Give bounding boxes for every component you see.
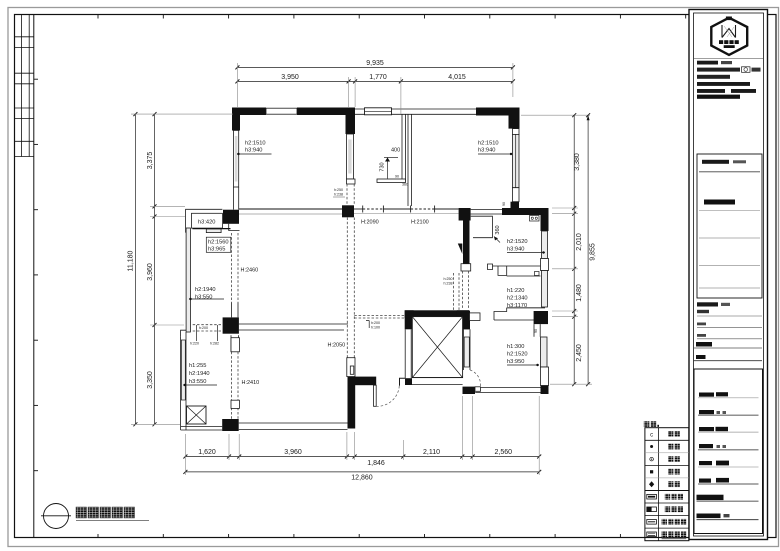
svg-text:400: 400 — [391, 148, 400, 154]
svg-text:1,480: 1,480 — [576, 284, 583, 302]
svg-text:2,450: 2,450 — [576, 344, 583, 362]
svg-text:9,855: 9,855 — [590, 243, 597, 261]
svg-text:h:282: h:282 — [210, 342, 219, 346]
svg-text:h2:1520: h2:1520 — [507, 239, 528, 245]
svg-text:90: 90 — [534, 329, 538, 333]
svg-text:730: 730 — [380, 162, 386, 171]
svg-text:H:2100: H:2100 — [411, 220, 429, 226]
svg-text:h2:1560: h2:1560 — [208, 240, 229, 246]
svg-text:h:220: h:220 — [190, 342, 199, 346]
svg-text:3,350: 3,350 — [147, 371, 154, 389]
svg-text:h:100: h:100 — [371, 326, 380, 330]
svg-text:h3:940: h3:940 — [245, 148, 262, 154]
svg-text:90: 90 — [502, 202, 506, 206]
svg-text:h2:1340: h2:1340 — [507, 296, 528, 302]
svg-text:h2:1510: h2:1510 — [245, 141, 266, 147]
svg-text:h:238: h:238 — [334, 193, 343, 197]
svg-text:h:200: h:200 — [199, 326, 208, 330]
svg-text:h1:300: h1:300 — [507, 344, 524, 350]
svg-text:1,620: 1,620 — [198, 449, 216, 456]
svg-text:h3:940: h3:940 — [478, 148, 495, 154]
svg-text:3,960: 3,960 — [147, 263, 154, 281]
svg-text:h1:255: h1:255 — [189, 363, 206, 369]
svg-text:11,180: 11,180 — [128, 250, 135, 271]
svg-text:2,010: 2,010 — [576, 233, 583, 251]
svg-text:h2:1520: h2:1520 — [507, 352, 528, 358]
svg-text:3,950: 3,950 — [281, 74, 299, 81]
svg-text:h2:1940: h2:1940 — [189, 371, 210, 377]
svg-text:12,860: 12,860 — [351, 475, 373, 482]
svg-text:h1:220: h1:220 — [507, 288, 524, 294]
svg-text:h2:1510: h2:1510 — [478, 141, 499, 147]
svg-text:1,846: 1,846 — [367, 460, 385, 467]
svg-text:H:2090: H:2090 — [361, 220, 379, 226]
svg-text:h3:420: h3:420 — [198, 220, 215, 226]
svg-text:H:2410: H:2410 — [242, 380, 260, 386]
svg-text:3,960: 3,960 — [284, 449, 302, 456]
svg-text:h:250: h:250 — [334, 188, 343, 192]
svg-text:3,375: 3,375 — [147, 152, 154, 170]
svg-text:h3:950: h3:950 — [507, 359, 524, 365]
svg-text:90: 90 — [395, 175, 399, 179]
svg-text:3,380: 3,380 — [574, 153, 581, 171]
svg-text:1,770: 1,770 — [369, 74, 387, 81]
svg-text:9,935: 9,935 — [366, 60, 384, 67]
svg-text:h:238: h:238 — [444, 282, 453, 286]
svg-text:H:2460: H:2460 — [241, 268, 259, 274]
svg-text:360: 360 — [402, 183, 408, 187]
svg-text:h3:940: h3:940 — [507, 247, 524, 253]
svg-text:h3:965: h3:965 — [208, 247, 225, 253]
svg-text:360: 360 — [495, 225, 501, 234]
svg-text:h:250: h:250 — [444, 277, 453, 281]
svg-text:2,560: 2,560 — [495, 449, 513, 456]
svg-text:2,110: 2,110 — [423, 449, 440, 456]
svg-text:h2:1940: h2:1940 — [195, 287, 216, 293]
svg-text:c: c — [650, 433, 653, 439]
svg-text:H:2050: H:2050 — [328, 343, 346, 349]
svg-text:h:200: h:200 — [371, 321, 380, 325]
svg-text:4,015: 4,015 — [448, 74, 466, 81]
svg-text:h3:550: h3:550 — [195, 295, 212, 301]
svg-text:h3:550: h3:550 — [189, 379, 206, 385]
